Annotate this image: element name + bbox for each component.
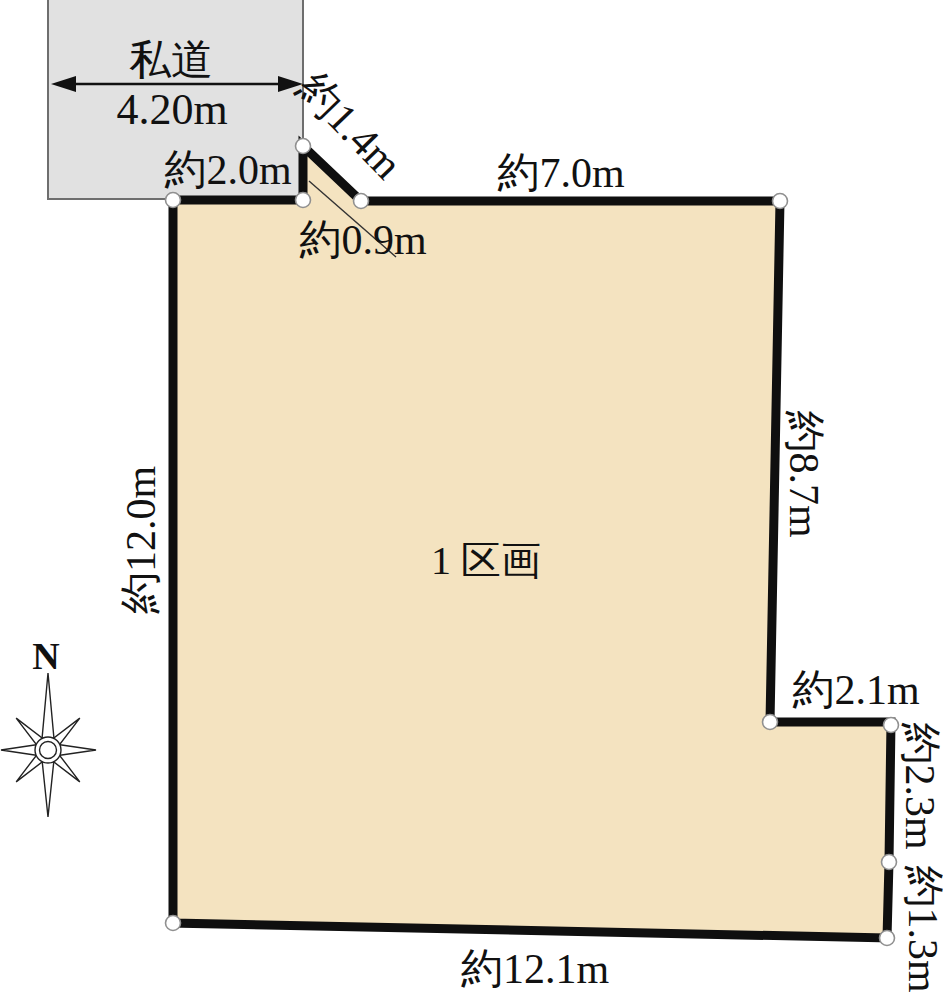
dim-notch-opening-label: 約0.9m — [299, 219, 426, 261]
compass-rose-icon — [0, 673, 112, 817]
lot-plan-diagram: 私道 4.20m 約2.0m 約1.4m 約7.0m 約0.9m 約12.0m … — [0, 0, 943, 1000]
vertex-marker — [882, 855, 897, 870]
vertex-marker — [296, 139, 311, 154]
dim-top-label: 約7.0m — [497, 152, 624, 194]
compass-north-label: N — [32, 637, 59, 675]
lot-label: 1 区画 — [431, 541, 541, 581]
road-label: 私道 — [129, 39, 213, 81]
dim-bottom-label: 約12.1m — [461, 948, 609, 990]
dim-step-right-upper-label: 約2.3m — [899, 722, 941, 849]
dim-step-top-label: 約2.1m — [792, 669, 919, 711]
vertex-marker — [166, 916, 181, 931]
vertex-marker — [354, 194, 369, 209]
vertex-marker — [166, 193, 181, 208]
road-width-label: 4.20m — [116, 88, 227, 132]
vertex-marker — [880, 931, 895, 946]
dim-top-left-label: 約2.0m — [164, 149, 291, 191]
vertex-marker — [763, 715, 778, 730]
dim-step-right-lower-label: 約1.3m — [902, 865, 943, 992]
vertex-marker — [296, 193, 311, 208]
dim-right-label: 約8.7m — [783, 410, 825, 537]
vertex-marker — [773, 194, 788, 209]
dim-left-label: 約12.0m — [120, 466, 162, 614]
